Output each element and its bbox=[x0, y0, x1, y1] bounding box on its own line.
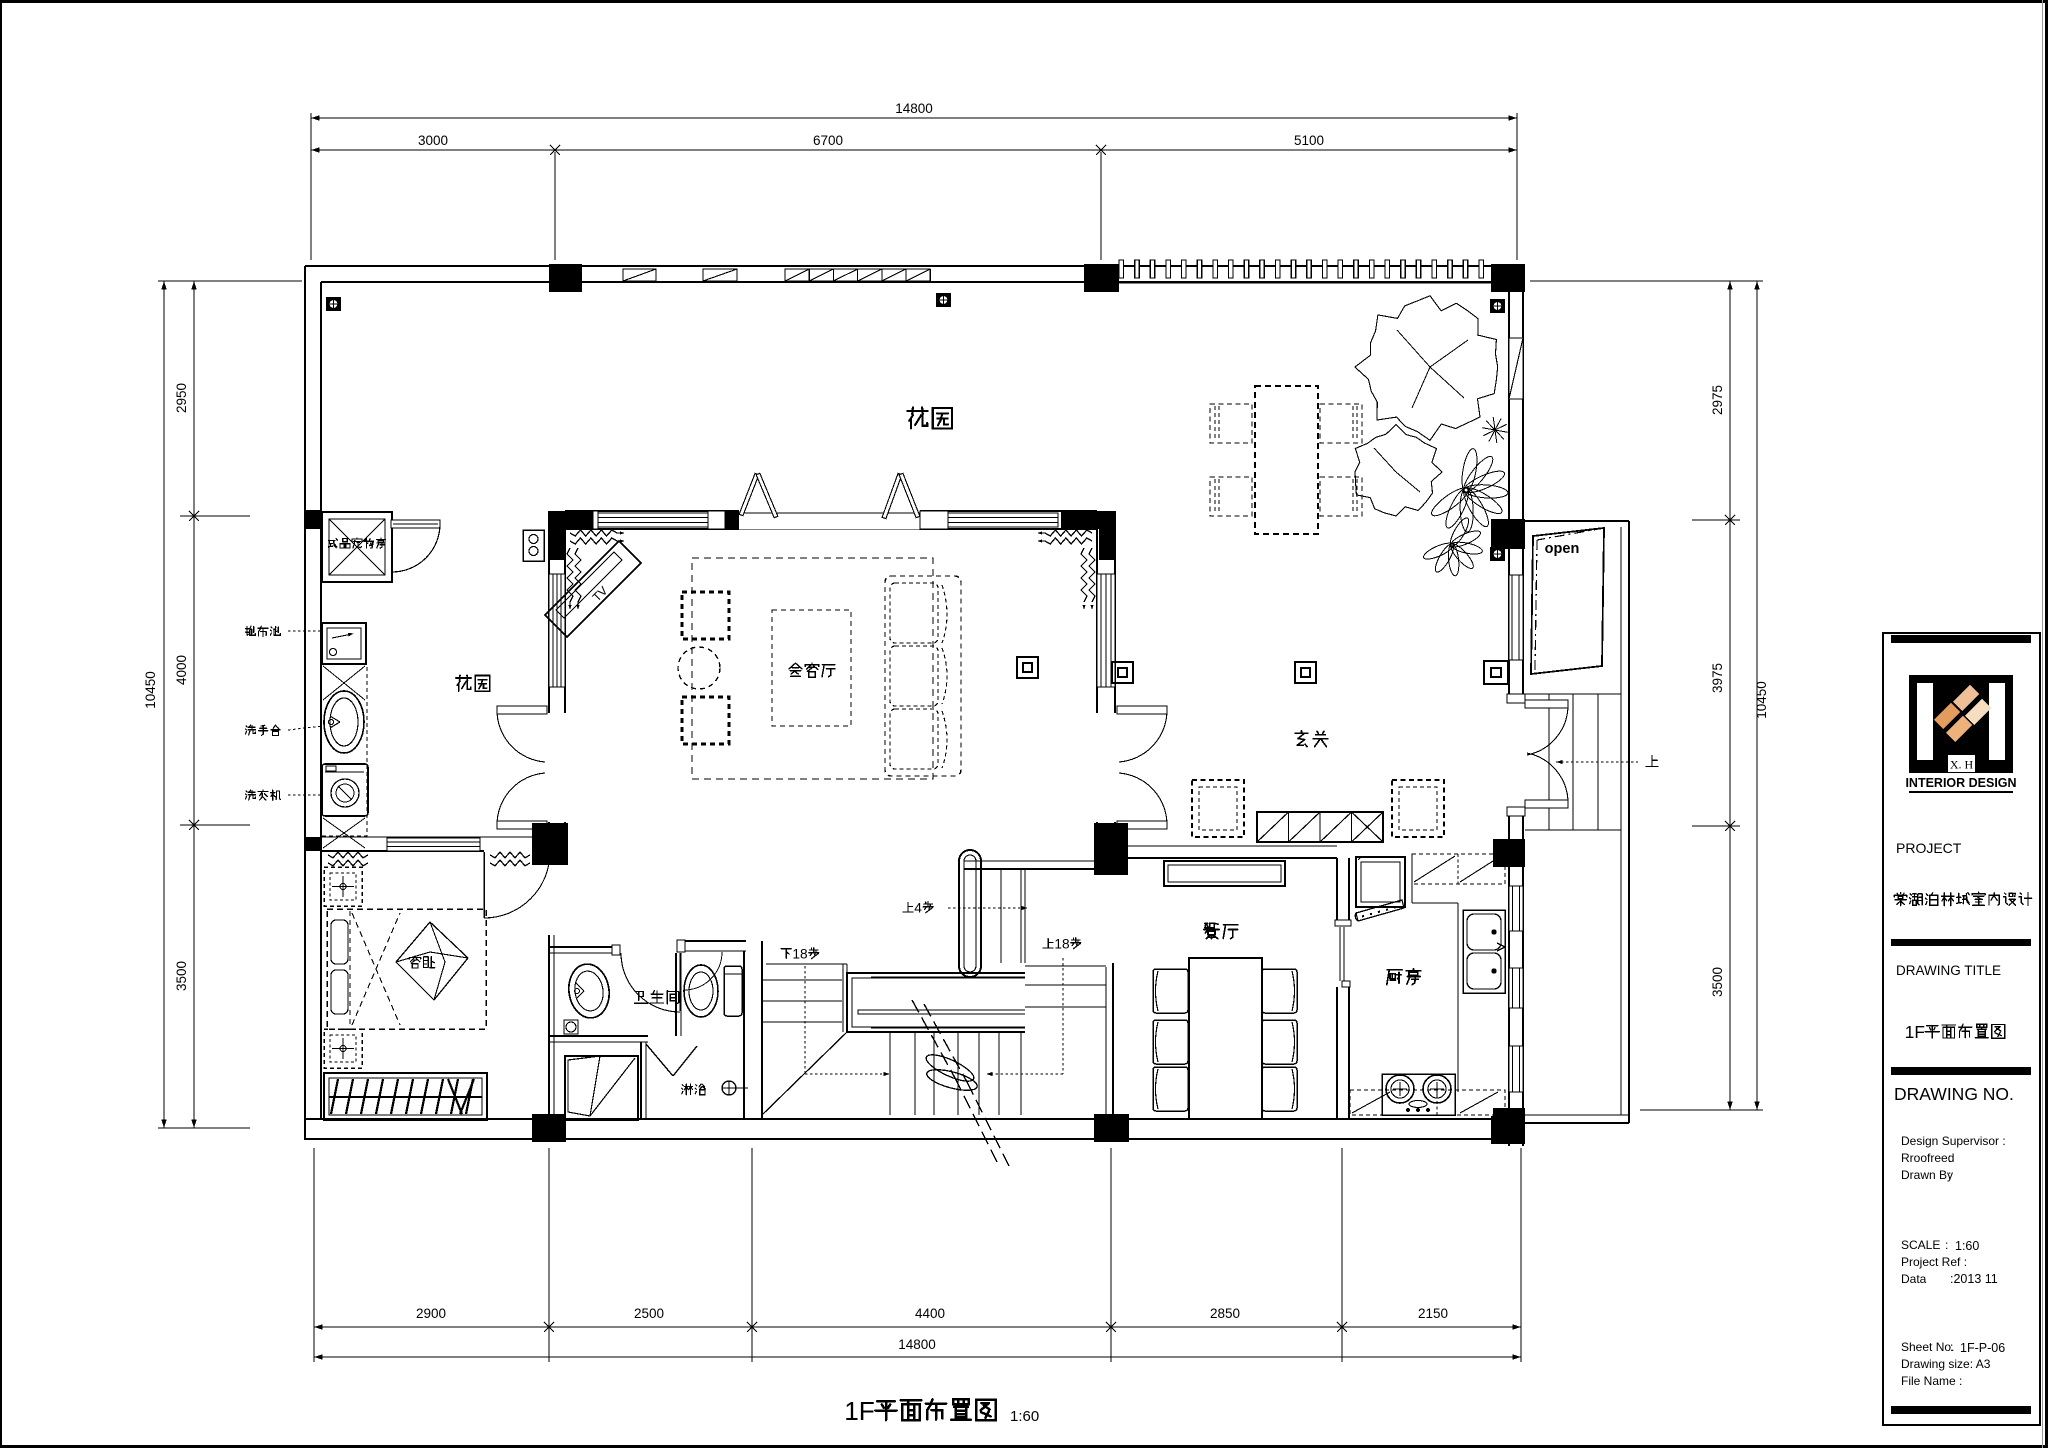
svg-text::: : bbox=[1948, 1168, 1951, 1182]
svg-text:3500: 3500 bbox=[174, 961, 189, 991]
svg-text:PROJECT: PROJECT bbox=[1896, 840, 1962, 856]
svg-text:INTERIOR DESIGN: INTERIOR DESIGN bbox=[1905, 776, 2016, 790]
svg-text::: : bbox=[1948, 1151, 1951, 1165]
svg-text:3975: 3975 bbox=[1710, 663, 1725, 693]
svg-text:3000: 3000 bbox=[418, 133, 448, 148]
svg-text:1F: 1F bbox=[844, 1396, 875, 1426]
svg-text:SCALE: SCALE bbox=[1901, 1238, 1940, 1252]
svg-text:Sheet No.: Sheet No. bbox=[1901, 1340, 1954, 1354]
svg-text:open: open bbox=[1545, 541, 1580, 557]
svg-text:18: 18 bbox=[1054, 937, 1070, 952]
svg-text:DRAWING NO.: DRAWING NO. bbox=[1894, 1084, 2014, 1104]
svg-text::: : bbox=[1950, 1340, 1953, 1354]
svg-text:Drawn By: Drawn By bbox=[1901, 1168, 1953, 1182]
svg-text:2150: 2150 bbox=[1418, 1306, 1448, 1321]
svg-text:14800: 14800 bbox=[895, 101, 933, 116]
svg-text:Rroofreed: Rroofreed bbox=[1901, 1151, 1954, 1165]
svg-text:2900: 2900 bbox=[416, 1306, 446, 1321]
svg-text:6700: 6700 bbox=[813, 133, 843, 148]
svg-text:1:60: 1:60 bbox=[1955, 1239, 1979, 1253]
svg-text::: : bbox=[1945, 1238, 1948, 1252]
svg-text:3500: 3500 bbox=[1710, 967, 1725, 997]
svg-text:4: 4 bbox=[914, 901, 922, 916]
svg-text:5100: 5100 bbox=[1294, 133, 1324, 148]
svg-text:1F: 1F bbox=[1905, 1022, 1925, 1042]
svg-text:Design Supervisor :: Design Supervisor : bbox=[1901, 1134, 2006, 1148]
svg-text:4000: 4000 bbox=[174, 655, 189, 685]
svg-text:X. H: X. H bbox=[1950, 758, 1974, 772]
svg-text:1:60: 1:60 bbox=[1010, 1408, 1039, 1425]
svg-text:2975: 2975 bbox=[1710, 385, 1725, 415]
svg-text:File Name :: File Name : bbox=[1901, 1374, 1962, 1388]
svg-text:2500: 2500 bbox=[634, 1306, 664, 1321]
svg-text:Drawing size: A3: Drawing size: A3 bbox=[1901, 1357, 1991, 1371]
svg-text:10450: 10450 bbox=[1754, 681, 1769, 719]
svg-text:DRAWING TITLE: DRAWING TITLE bbox=[1896, 963, 2001, 978]
svg-text:Project Ref :: Project Ref : bbox=[1901, 1255, 1967, 1269]
svg-text::2013 11: :2013 11 bbox=[1950, 1272, 1998, 1286]
svg-text:10450: 10450 bbox=[143, 671, 158, 709]
svg-text:14800: 14800 bbox=[898, 1337, 936, 1352]
svg-text:18: 18 bbox=[792, 947, 808, 962]
svg-text:4400: 4400 bbox=[915, 1306, 945, 1321]
svg-text:2950: 2950 bbox=[174, 383, 189, 413]
svg-text:1F-P-06: 1F-P-06 bbox=[1960, 1341, 2005, 1355]
svg-text:Data: Data bbox=[1901, 1272, 1927, 1286]
svg-text:2850: 2850 bbox=[1210, 1306, 1240, 1321]
